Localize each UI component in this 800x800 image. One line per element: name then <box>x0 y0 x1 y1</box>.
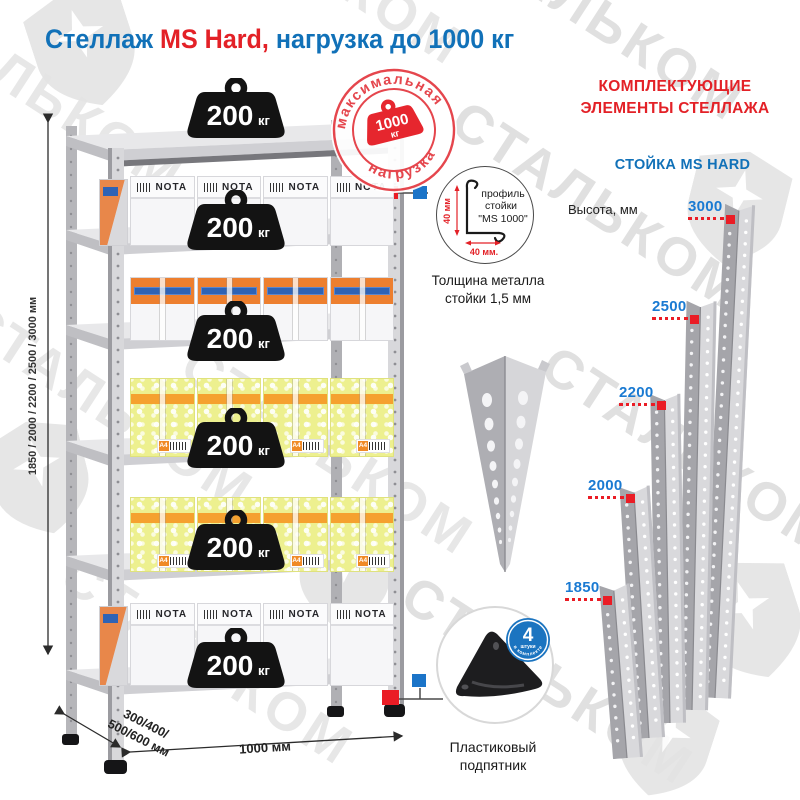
red-marker <box>726 215 735 224</box>
svg-text:40 мм: 40 мм <box>442 198 452 224</box>
post-height-value: 2000 <box>588 477 623 494</box>
svg-text:кг: кг <box>258 225 271 240</box>
height-axis-label: Высота, мм <box>568 202 638 217</box>
title-part-2: MS Hard, <box>160 24 269 54</box>
svg-text:200: 200 <box>207 100 254 131</box>
post-label-1850: 1850 <box>565 579 601 601</box>
svg-text:"MS 1000": "MS 1000" <box>478 213 528 225</box>
paper-box <box>330 277 395 341</box>
barcode-icon <box>137 610 151 619</box>
weight-200kg-icon: 200кг <box>176 301 296 365</box>
post-label-2200: 2200 <box>619 384 655 406</box>
title-part-3: нагрузка до 1000 кг <box>269 24 514 54</box>
poster: СТАЛЬКОМ СТАЛЬКОМ СТАЛЬКОМ СТАЛЬКОМ СТАЛ… <box>0 0 800 800</box>
dotted-leader <box>588 496 624 499</box>
box-brand-label: NOTA <box>288 609 320 620</box>
box-brand-label: NOTA <box>222 609 254 620</box>
red-marker <box>657 401 666 410</box>
svg-text:штуки: штуки <box>520 644 535 650</box>
svg-text:профиль: профиль <box>481 188 525 200</box>
weight-200kg-icon: 200кг <box>176 78 296 142</box>
weight-200kg-icon: 200кг <box>176 510 296 574</box>
profile-caption: Толщина металла стойки 1,5 мм <box>408 272 568 307</box>
title-part-1: Стеллаж <box>45 24 160 54</box>
paper-box-a4: A4 <box>330 497 395 572</box>
svg-text:200: 200 <box>207 430 254 461</box>
blue-marker <box>412 674 426 687</box>
foot-caption: Пластиковый подпятник <box>413 738 573 774</box>
profile-text: профиль стойки "MS 1000" <box>478 188 528 225</box>
post-label-3000: 3000 <box>688 198 724 220</box>
barcode-icon <box>137 183 151 192</box>
barcode-icon <box>204 610 218 619</box>
dotted-leader <box>688 217 724 220</box>
profile-caption-line1: Толщина металла <box>432 273 545 288</box>
quantity-badge: 4 штуки в комплекте <box>505 617 551 663</box>
svg-text:кг: кг <box>258 663 271 678</box>
weight-200kg-icon: 200кг <box>176 628 296 692</box>
barcode-icon <box>303 442 321 450</box>
paper-box-a4: A4 <box>330 378 395 457</box>
svg-text:кг: кг <box>258 113 271 128</box>
post-height-value: 3000 <box>688 198 723 215</box>
svg-text:40 мм.: 40 мм. <box>470 247 498 257</box>
page-title: Стеллаж MS Hard, нагрузка до 1000 кг <box>45 24 514 55</box>
post-label-2000: 2000 <box>588 477 624 499</box>
nota-box: NOTA <box>330 603 395 686</box>
height-dimension-label: 1850 / 2000 / 2200 / 2500 / 3000 мм <box>27 297 39 475</box>
svg-text:200: 200 <box>207 650 254 681</box>
components-header: КОМПЛЕКТУЮЩИЕ ЭЛЕМЕНТЫ СТЕЛЛАЖА <box>553 76 797 119</box>
components-header-line2: ЭЛЕМЕНТЫ СТЕЛЛАЖА <box>581 100 770 117</box>
dotted-leader <box>565 598 601 601</box>
post-height-value: 1850 <box>565 579 600 596</box>
weight-200kg-icon: 200кг <box>176 190 296 254</box>
components-header-line1: КОМПЛЕКТУЮЩИЕ <box>599 78 752 95</box>
dotted-leader <box>619 403 655 406</box>
foot-caption-line2: подпятник <box>460 757 526 773</box>
red-marker <box>626 494 635 503</box>
svg-text:кг: кг <box>258 336 271 351</box>
dotted-leader <box>652 317 688 320</box>
barcode-icon <box>303 557 321 565</box>
side-box <box>99 606 128 686</box>
post-height-value: 2500 <box>652 298 687 315</box>
a4-label: A4 <box>358 441 368 451</box>
svg-text:кг: кг <box>258 545 271 560</box>
side-box <box>99 179 128 246</box>
box-brand-label: NOTA <box>355 609 387 620</box>
svg-text:4: 4 <box>523 625 534 646</box>
barcode-icon <box>270 610 284 619</box>
red-marker <box>690 315 699 324</box>
weight-200kg-icon: 200кг <box>176 408 296 472</box>
svg-text:кг: кг <box>258 443 271 458</box>
barcode-icon <box>369 557 387 565</box>
post-subheader: СТОЙКА MS HARD <box>565 157 800 173</box>
box-brand-label: NOTA <box>155 609 187 620</box>
svg-text:стойки: стойки <box>485 200 517 212</box>
svg-text:200: 200 <box>207 323 254 354</box>
a4-label: A4 <box>358 556 368 566</box>
profile-caption-line2: стойки 1,5 мм <box>445 291 531 306</box>
svg-text:200: 200 <box>207 532 254 563</box>
post-label-2500: 2500 <box>652 298 688 320</box>
barcode-icon <box>337 610 351 619</box>
a4-label: A4 <box>159 556 169 566</box>
corner-post-figure <box>460 356 550 572</box>
foot-caption-line1: Пластиковый <box>450 739 537 755</box>
red-marker <box>603 596 612 605</box>
a4-label: A4 <box>159 441 169 451</box>
barcode-icon <box>369 442 387 450</box>
post-height-value: 2200 <box>619 384 654 401</box>
svg-text:200: 200 <box>207 212 254 243</box>
red-marker <box>382 690 399 705</box>
